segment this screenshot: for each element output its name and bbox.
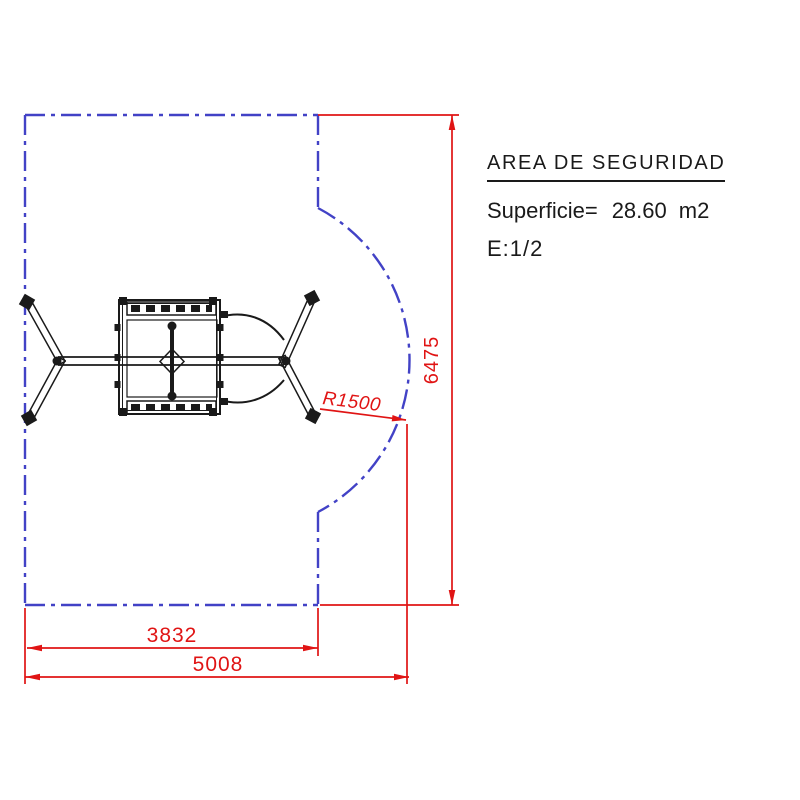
rod-top-joint (168, 322, 177, 331)
frame-corner (119, 408, 127, 416)
arrow-left-icon (27, 645, 42, 652)
frame-corner (209, 408, 217, 416)
scale-label: E:1/2 (487, 236, 725, 262)
rail-connector (220, 398, 228, 405)
rod-bottom-joint (168, 392, 177, 401)
radius-label: R1500 (321, 388, 382, 416)
surface-value: 28.60 (612, 198, 667, 223)
arrow-left-icon (25, 674, 40, 681)
arrow-right-icon (303, 645, 318, 652)
left-lower-foot (21, 410, 37, 426)
frame-tick (115, 324, 121, 331)
surface-unit: m2 (679, 198, 710, 223)
side-rails (220, 311, 284, 405)
frame-tick (115, 354, 121, 361)
right-support-frame (279, 290, 321, 424)
frame-tick (218, 354, 224, 361)
info-panel: AREA DE SEGURIDAD Superficie=28.60m2 E:1… (487, 152, 725, 262)
dim-label-height: 6475 (421, 336, 443, 385)
frame-corner (209, 297, 217, 305)
dim-label-inner-width: 3832 (147, 624, 198, 647)
frame-tick (218, 381, 224, 388)
lower-rail (220, 380, 284, 403)
right-lower-foot (305, 408, 321, 424)
left-upper-foot (19, 294, 35, 310)
frame-corner (119, 297, 127, 305)
boundary-arc-r1500 (318, 208, 410, 512)
arrow-up-icon (449, 115, 456, 130)
safety-area-title: AREA DE SEGURIDAD (487, 152, 725, 182)
frame-tick (115, 381, 121, 388)
arrow-down-icon (449, 590, 456, 605)
left-upper-leg (26, 302, 65, 364)
surface-label: Superficie= (487, 198, 598, 223)
safety-area-drawing: 6475 3832 5008 R1500 (0, 0, 800, 800)
rail-connector (220, 311, 228, 318)
surface-line: Superficie=28.60m2 (487, 198, 725, 224)
equipment-top-view (19, 290, 321, 426)
upper-rail (220, 315, 284, 340)
dimensions: 6475 3832 5008 R1500 (25, 115, 459, 684)
frame-tick (218, 324, 224, 331)
platform-bottom-bar (127, 401, 216, 414)
technical-drawing-canvas: 6475 3832 5008 R1500 (0, 0, 800, 800)
left-lower-leg (28, 357, 65, 417)
dim-label-outer-width: 5008 (193, 653, 244, 676)
